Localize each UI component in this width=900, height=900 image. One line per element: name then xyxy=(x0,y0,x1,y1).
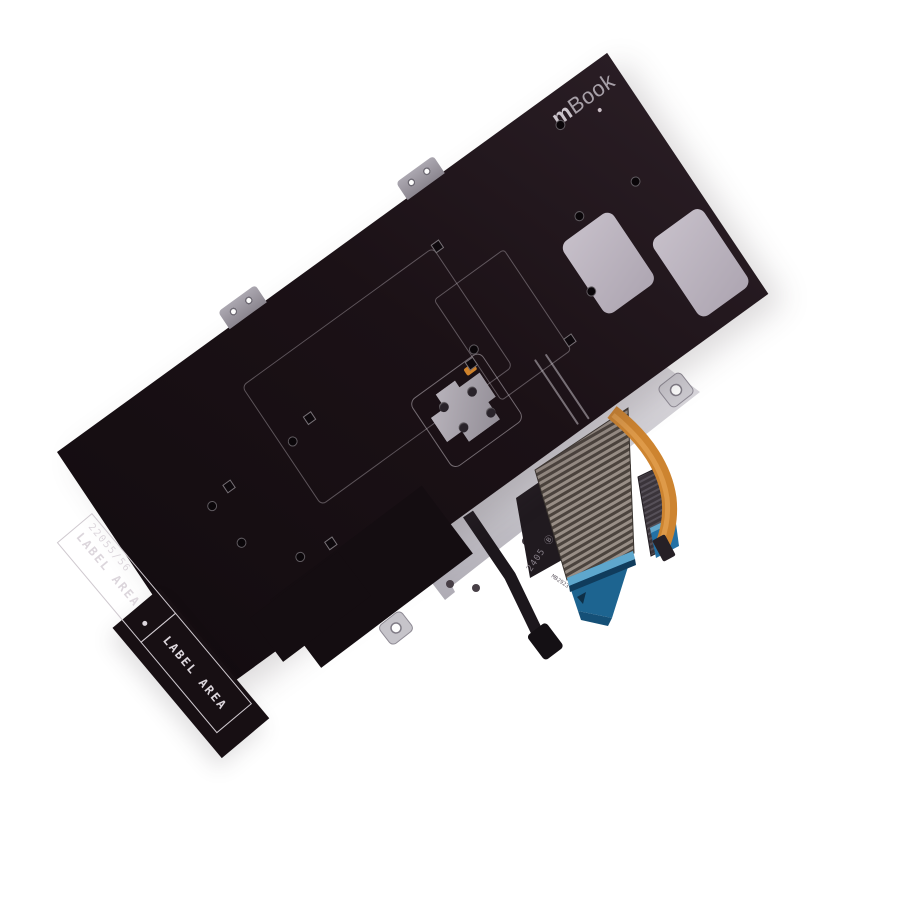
board-hole xyxy=(629,174,643,188)
key-mount-square xyxy=(222,479,236,493)
board-hole xyxy=(205,499,219,513)
adhesive-pad-1 xyxy=(559,209,657,317)
product-photo-keyboard-back: 2405 Ⓑ MB2923 xyxy=(0,0,900,900)
mounting-tab-hole xyxy=(243,295,254,306)
reflection-dot xyxy=(597,107,602,113)
board-hole xyxy=(573,209,587,223)
key-mount-square xyxy=(324,536,338,550)
board-hole xyxy=(293,550,307,564)
mounting-tab-hole xyxy=(421,166,432,177)
mounting-tab-hole xyxy=(228,306,239,317)
mounting-tab-hole xyxy=(406,177,417,188)
board-hole xyxy=(235,536,249,550)
